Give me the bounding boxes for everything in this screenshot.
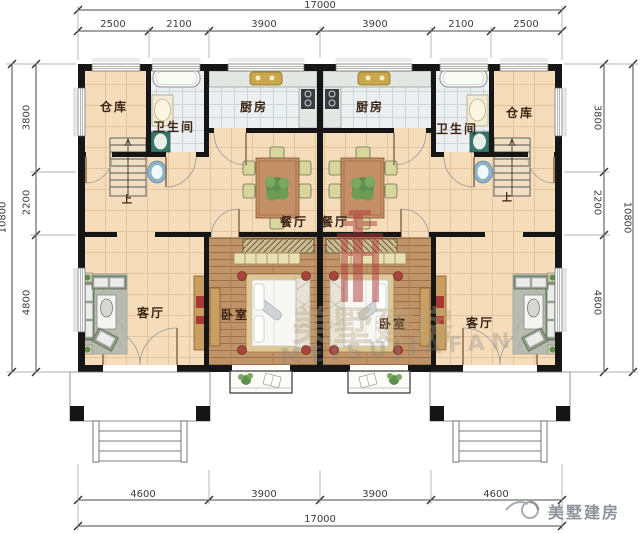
dim-bottom-total: 17000 [298,514,342,525]
dim-top-seg-3: 3900 [353,19,397,30]
dim-left-total: 10800 [0,196,9,240]
dim-left-seg-1: 2200 [22,181,33,225]
floor-plan-drawing [0,0,640,534]
dim-bottom-seg-0: 4600 [121,489,165,500]
room-label-bathroom-right: 卫生间 [422,120,492,137]
dim-bottom-seg-1: 3900 [242,489,286,500]
dim-top-total: 17000 [298,0,342,11]
stairs-up-label-right: 上 [497,189,517,204]
room-label-storage-right: 仓库 [485,104,555,121]
dim-top-seg-2: 3900 [242,19,286,30]
dim-right-total: 10800 [622,196,633,240]
dim-left-seg-2: 4800 [22,281,33,325]
dim-bottom-seg-2: 3900 [353,489,397,500]
dim-right-seg-1: 2200 [592,181,603,225]
floor-plan-page: 17000 2500 2100 3900 3900 2100 2500 1080… [0,0,640,534]
dim-top-seg-0: 2500 [91,19,135,30]
dim-left-seg-0: 3800 [22,96,33,140]
dim-top-seg-5: 2500 [504,19,548,30]
brand-name: 美墅建房 [548,499,620,523]
dim-top-seg-4: 2100 [439,19,483,30]
brand-logo-icon [502,494,546,524]
room-label-dining-right: 餐厅 [300,213,370,230]
room-label-living-left: 客厅 [116,304,186,321]
dim-right-seg-2: 4800 [592,281,603,325]
room-label-kitchen-left: 厨房 [219,98,289,115]
room-label-bathroom-left: 卫生间 [139,118,209,135]
room-label-kitchen-right: 厨房 [335,98,405,115]
room-label-storage-left: 仓库 [79,98,149,115]
dim-top-seg-1: 2100 [157,19,201,30]
dim-right-seg-0: 3800 [592,96,603,140]
room-label-bedroom-left: 卧室 [200,306,270,323]
stairs-up-label-left: 上 [117,191,137,206]
